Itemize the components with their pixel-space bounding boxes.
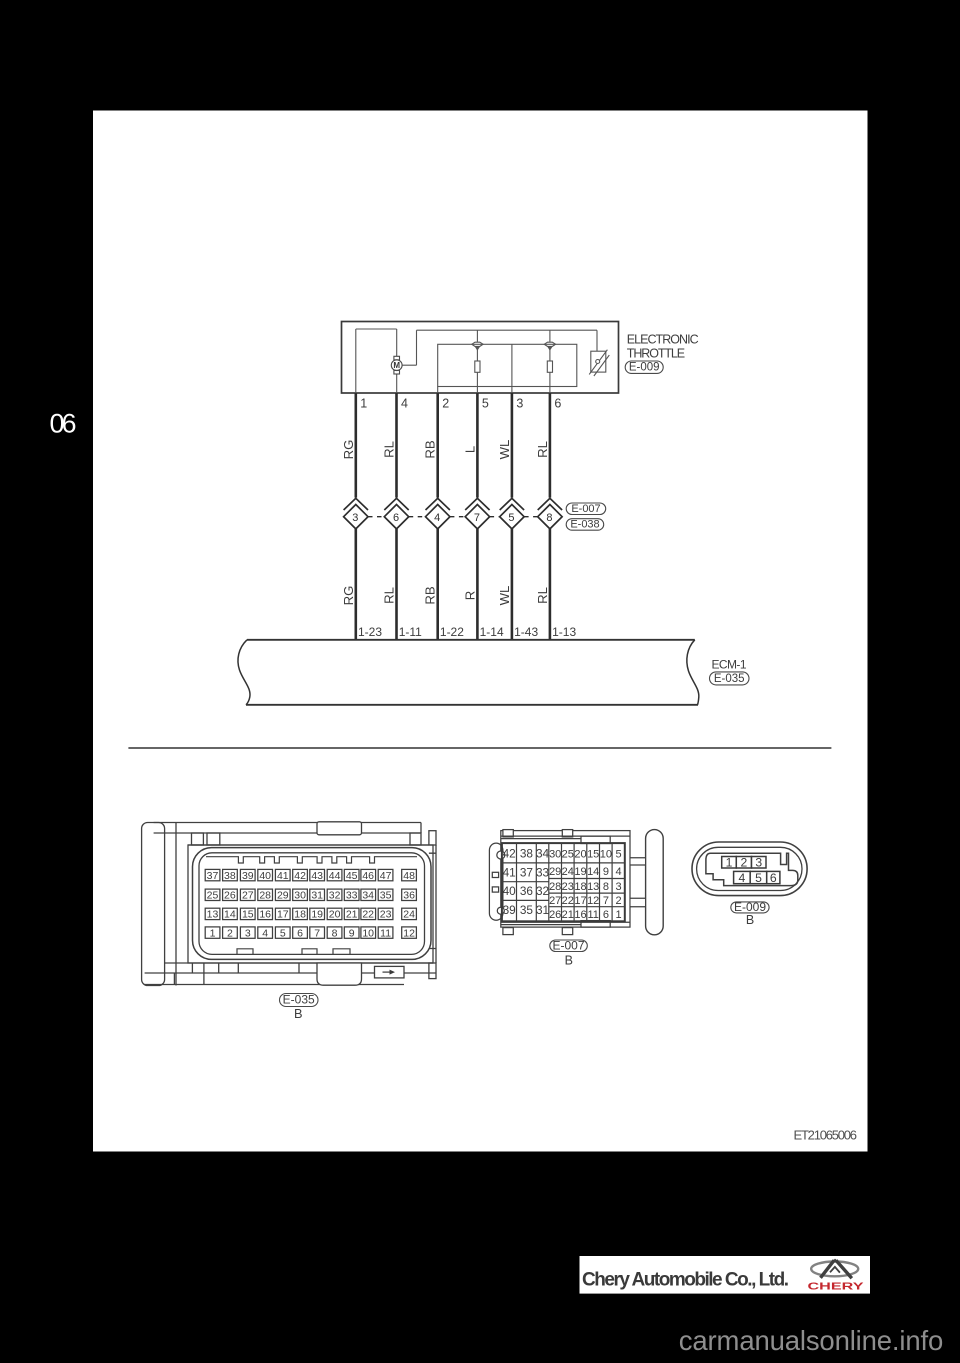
svg-text:19: 19	[574, 866, 586, 878]
svg-text:41: 41	[503, 865, 516, 879]
svg-text:L: L	[462, 446, 477, 453]
svg-text:28: 28	[259, 890, 271, 902]
svg-text:29: 29	[277, 890, 289, 902]
svg-text:4: 4	[739, 871, 746, 885]
svg-text:27: 27	[549, 895, 561, 907]
svg-text:RG: RG	[341, 440, 356, 460]
svg-text:27: 27	[242, 890, 254, 902]
svg-text:1-23: 1-23	[358, 625, 382, 639]
svg-text:21: 21	[346, 909, 358, 921]
svg-text:9: 9	[603, 866, 609, 878]
svg-text:45: 45	[346, 870, 358, 882]
svg-text:46: 46	[362, 870, 374, 882]
svg-text:2: 2	[442, 397, 449, 411]
svg-text:21: 21	[562, 909, 574, 921]
svg-text:6: 6	[297, 927, 303, 939]
svg-text:32: 32	[329, 890, 341, 902]
svg-text:14: 14	[224, 909, 236, 921]
svg-text:B: B	[294, 1006, 303, 1021]
svg-text:37: 37	[207, 870, 219, 882]
svg-text:RG: RG	[341, 586, 356, 606]
svg-text:13: 13	[587, 881, 599, 893]
svg-text:1-22: 1-22	[440, 625, 464, 639]
svg-text:6: 6	[554, 397, 561, 411]
svg-text:24: 24	[403, 909, 415, 921]
svg-text:E-009: E-009	[629, 362, 660, 374]
svg-text:44: 44	[329, 870, 341, 882]
svg-text:11: 11	[587, 909, 598, 921]
svg-text:38: 38	[520, 847, 534, 861]
svg-text:5: 5	[755, 871, 762, 885]
svg-text:16: 16	[259, 909, 271, 921]
svg-text:13: 13	[207, 909, 219, 921]
svg-text:B: B	[565, 953, 573, 967]
svg-text:12: 12	[587, 895, 599, 907]
svg-text:5: 5	[508, 512, 514, 524]
svg-text:1-11: 1-11	[399, 625, 422, 639]
svg-text:28: 28	[549, 881, 561, 893]
svg-text:23: 23	[380, 909, 392, 921]
svg-text:1: 1	[615, 909, 621, 921]
svg-text:9: 9	[349, 927, 355, 939]
svg-text:ET21065006: ET21065006	[794, 1128, 858, 1143]
svg-text:1-14: 1-14	[480, 625, 504, 639]
svg-text:1-43: 1-43	[514, 625, 538, 639]
svg-text:3: 3	[516, 397, 523, 411]
svg-text:RL: RL	[535, 441, 550, 458]
svg-text:1: 1	[210, 927, 216, 939]
svg-text:47: 47	[380, 870, 392, 882]
svg-text:24: 24	[562, 866, 574, 878]
svg-text:23: 23	[562, 881, 574, 893]
svg-text:38: 38	[224, 870, 236, 882]
svg-text:3: 3	[245, 927, 251, 939]
svg-text:35: 35	[520, 903, 534, 917]
svg-text:RL: RL	[382, 587, 397, 604]
svg-text:18: 18	[294, 909, 306, 921]
svg-text:12: 12	[403, 927, 415, 939]
svg-text:36: 36	[403, 890, 415, 902]
svg-text:CHERY: CHERY	[808, 1281, 864, 1293]
svg-text:17: 17	[574, 895, 586, 907]
svg-text:37: 37	[520, 865, 533, 879]
svg-text:32: 32	[536, 884, 549, 898]
svg-text:WL: WL	[497, 586, 512, 606]
svg-text:4: 4	[615, 866, 621, 878]
svg-text:3: 3	[352, 512, 358, 524]
svg-text:8: 8	[603, 881, 609, 893]
svg-text:E-007: E-007	[552, 938, 584, 952]
svg-text:B: B	[746, 913, 754, 927]
svg-text:6: 6	[393, 512, 399, 524]
svg-text:RL: RL	[382, 441, 397, 458]
svg-text:11: 11	[380, 927, 391, 939]
svg-text:39: 39	[503, 903, 516, 917]
svg-text:14: 14	[587, 866, 599, 878]
svg-text:19: 19	[311, 909, 323, 921]
svg-text:25: 25	[207, 890, 219, 902]
svg-text:42: 42	[503, 847, 516, 861]
svg-text:4: 4	[401, 397, 408, 411]
svg-text:Chery Automobile Co., Ltd.: Chery Automobile Co., Ltd.	[582, 1269, 789, 1290]
svg-text:RB: RB	[423, 586, 438, 605]
svg-text:3: 3	[755, 856, 762, 870]
svg-text:2: 2	[227, 927, 233, 939]
svg-text:RB: RB	[423, 440, 438, 459]
svg-text:E-009: E-009	[734, 900, 766, 914]
svg-text:40: 40	[259, 870, 271, 882]
svg-text:3: 3	[615, 881, 621, 893]
svg-text:5: 5	[615, 849, 621, 861]
svg-text:15: 15	[242, 909, 254, 921]
svg-text:34: 34	[536, 847, 550, 861]
svg-text:E-038: E-038	[570, 519, 599, 531]
svg-text:2: 2	[615, 895, 621, 907]
svg-text:8: 8	[546, 512, 552, 524]
svg-text:M: M	[393, 361, 400, 370]
svg-text:30: 30	[549, 849, 561, 861]
svg-text:22: 22	[562, 895, 574, 907]
svg-text:31: 31	[311, 890, 323, 902]
svg-text:40: 40	[503, 884, 517, 898]
svg-text:33: 33	[346, 890, 358, 902]
svg-text:E-035: E-035	[283, 993, 315, 1007]
svg-text:30: 30	[294, 890, 306, 902]
svg-text:10: 10	[362, 927, 374, 939]
svg-text:15: 15	[587, 849, 599, 861]
svg-text:carmanualsonline.info: carmanualsonline.info	[679, 1325, 944, 1356]
svg-text:22: 22	[362, 909, 374, 921]
svg-text:4: 4	[434, 512, 440, 524]
svg-text:34: 34	[362, 890, 374, 902]
svg-text:8: 8	[332, 927, 338, 939]
svg-text:17: 17	[277, 909, 289, 921]
svg-text:RL: RL	[535, 587, 550, 604]
svg-text:1: 1	[726, 856, 733, 870]
svg-text:41: 41	[277, 870, 289, 882]
svg-text:29: 29	[549, 866, 561, 878]
svg-text:35: 35	[380, 890, 392, 902]
svg-text:7: 7	[314, 927, 320, 939]
svg-text:26: 26	[224, 890, 236, 902]
svg-text:48: 48	[403, 870, 415, 882]
svg-text:2: 2	[741, 856, 748, 870]
svg-text:1-13: 1-13	[552, 625, 576, 639]
svg-text:39: 39	[242, 870, 254, 882]
svg-text:31: 31	[536, 903, 549, 917]
svg-text:ELECTRONIC: ELECTRONIC	[627, 333, 699, 347]
svg-text:E-007: E-007	[571, 503, 600, 515]
svg-text:42: 42	[294, 870, 306, 882]
svg-text:6: 6	[770, 871, 777, 885]
svg-text:R: R	[462, 591, 477, 601]
svg-text:20: 20	[329, 909, 341, 921]
svg-text:ECM-1: ECM-1	[712, 657, 747, 671]
svg-text:36: 36	[520, 884, 534, 898]
svg-text:5: 5	[482, 397, 489, 411]
svg-text:THROTTLE: THROTTLE	[627, 347, 685, 361]
svg-text:33: 33	[536, 865, 550, 879]
svg-text:7: 7	[474, 512, 480, 524]
svg-text:25: 25	[562, 849, 574, 861]
svg-text:20: 20	[574, 849, 586, 861]
svg-text:10: 10	[600, 849, 612, 861]
svg-text:E-035: E-035	[714, 673, 745, 685]
svg-text:26: 26	[549, 909, 561, 921]
svg-text:WL: WL	[497, 440, 512, 460]
svg-text:5: 5	[280, 927, 286, 939]
svg-text:1: 1	[360, 397, 367, 411]
svg-text:06: 06	[50, 409, 77, 439]
svg-text:18: 18	[574, 881, 586, 893]
svg-text:43: 43	[311, 870, 323, 882]
svg-text:6: 6	[603, 909, 609, 921]
svg-text:7: 7	[603, 895, 609, 907]
svg-text:16: 16	[574, 909, 586, 921]
svg-text:4: 4	[262, 927, 268, 939]
